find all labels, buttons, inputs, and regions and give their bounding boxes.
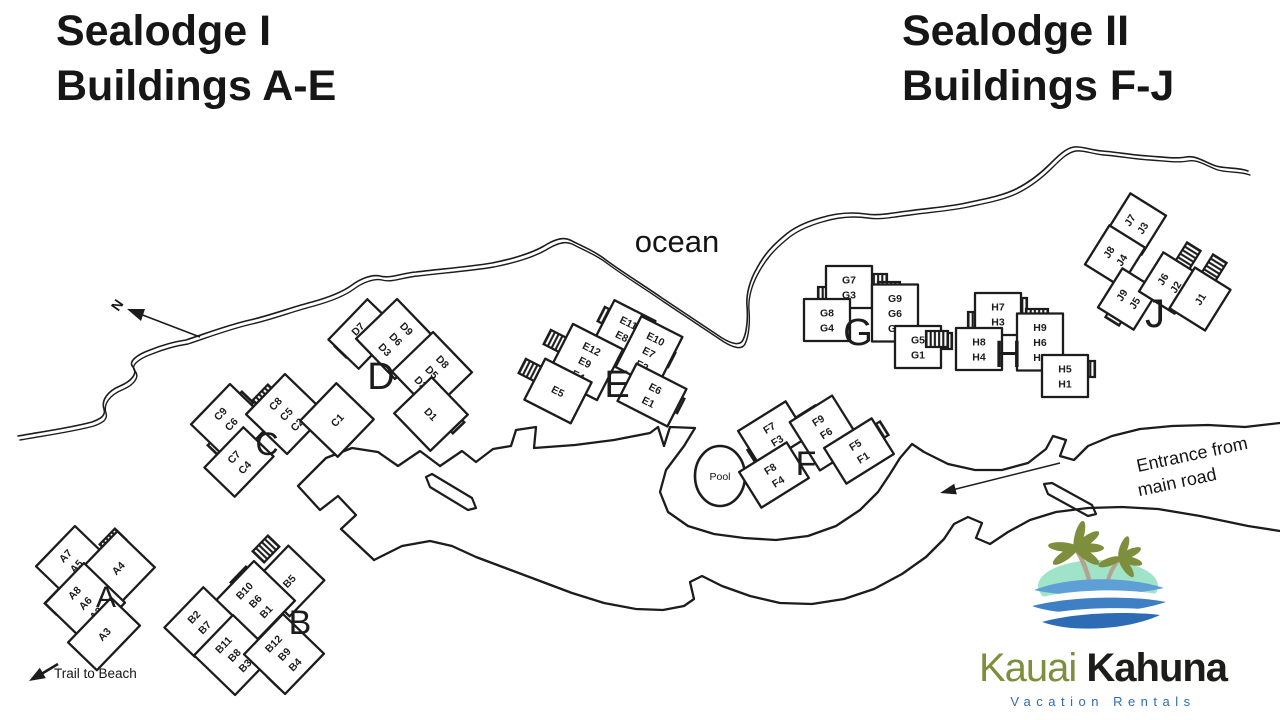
building-G-letter: G: [843, 312, 873, 354]
building-A-letter: A: [96, 581, 116, 614]
north-arrow: N: [108, 296, 200, 337]
ocean-label: ocean: [635, 224, 719, 259]
unit-H1: H1: [1058, 379, 1072, 391]
unit-G1: G1: [911, 350, 925, 362]
road-median-1: [426, 474, 476, 510]
resort-site-map: Pool ocean N Trail to Beach Entrance fro…: [0, 0, 1280, 720]
building-C: C9C6C3C8C5C2C1C7C4C: [191, 374, 374, 497]
building-G: G7G3G9G6G2G8G4G5G1G: [804, 266, 952, 368]
title-sealodge-2-line2: Buildings F-J: [902, 59, 1174, 114]
north-label: N: [108, 296, 127, 313]
title-sealodge-2: Sealodge II Buildings F-J: [902, 4, 1174, 113]
building-F-letter: F: [796, 445, 817, 483]
building-D-letter: D: [367, 356, 394, 398]
unit-H7: H7: [991, 302, 1005, 314]
title-sealodge-1: Sealodge I Buildings A-E: [56, 4, 336, 113]
building-F: F7F3F9F6F2F5F1F8F4F: [738, 396, 894, 508]
title-sealodge-1-line1: Sealodge I: [56, 4, 336, 59]
unit-H9: H9: [1033, 322, 1047, 334]
logo-island-icon: [1030, 520, 1168, 629]
building-E-letter: E: [604, 364, 629, 406]
unit-G4: G4: [820, 323, 834, 335]
title-sealodge-1-line2: Buildings A-E: [56, 59, 336, 114]
building-C-letter: C: [255, 426, 278, 462]
pool: Pool: [695, 446, 745, 506]
building-A: A7A5A1A4A8A6A2A3A: [36, 526, 155, 670]
pool-label: Pool: [709, 471, 730, 483]
unit-G7: G7: [842, 275, 856, 287]
unit-G8: G8: [820, 308, 834, 320]
trail-to-beach: Trail to Beach: [29, 664, 137, 681]
building-B: B5B10B6B1B2B7B11B8B3B12B9B4B: [164, 536, 324, 695]
building-J-letter: J: [1145, 292, 1165, 336]
unit-G9: G9: [888, 293, 902, 305]
stairs-icon: [926, 331, 948, 347]
title-sealodge-2-line1: Sealodge II: [902, 4, 1174, 59]
building-C-wing: C1: [300, 383, 374, 457]
unit-G5: G5: [911, 335, 925, 347]
logo-brand-primary: Kauai: [979, 646, 1076, 690]
building-H-letter: H: [994, 334, 1021, 376]
building-B-letter: B: [289, 604, 312, 642]
unit-G6: G6: [888, 308, 902, 320]
palm-frond-icon: [1048, 520, 1104, 568]
logo-wordmark: Kauai Kahuna: [963, 646, 1243, 691]
unit-H6: H6: [1033, 337, 1047, 349]
unit-H8: H8: [972, 337, 986, 349]
building-J: J7J3J8J4J9J5J6J2J1J: [1085, 193, 1231, 336]
logo-tagline: Vacation Rentals: [963, 694, 1243, 709]
building-H-wing: H5H1: [1042, 355, 1088, 397]
unit-H4: H4: [972, 352, 986, 364]
building-E: E11E8E3E10E7E2E12E9E4E5E6E1E: [519, 300, 687, 426]
logo-brand-secondary: Kahuna: [1086, 646, 1227, 690]
unit-H3: H3: [991, 317, 1005, 329]
unit-H5: H5: [1058, 364, 1072, 376]
